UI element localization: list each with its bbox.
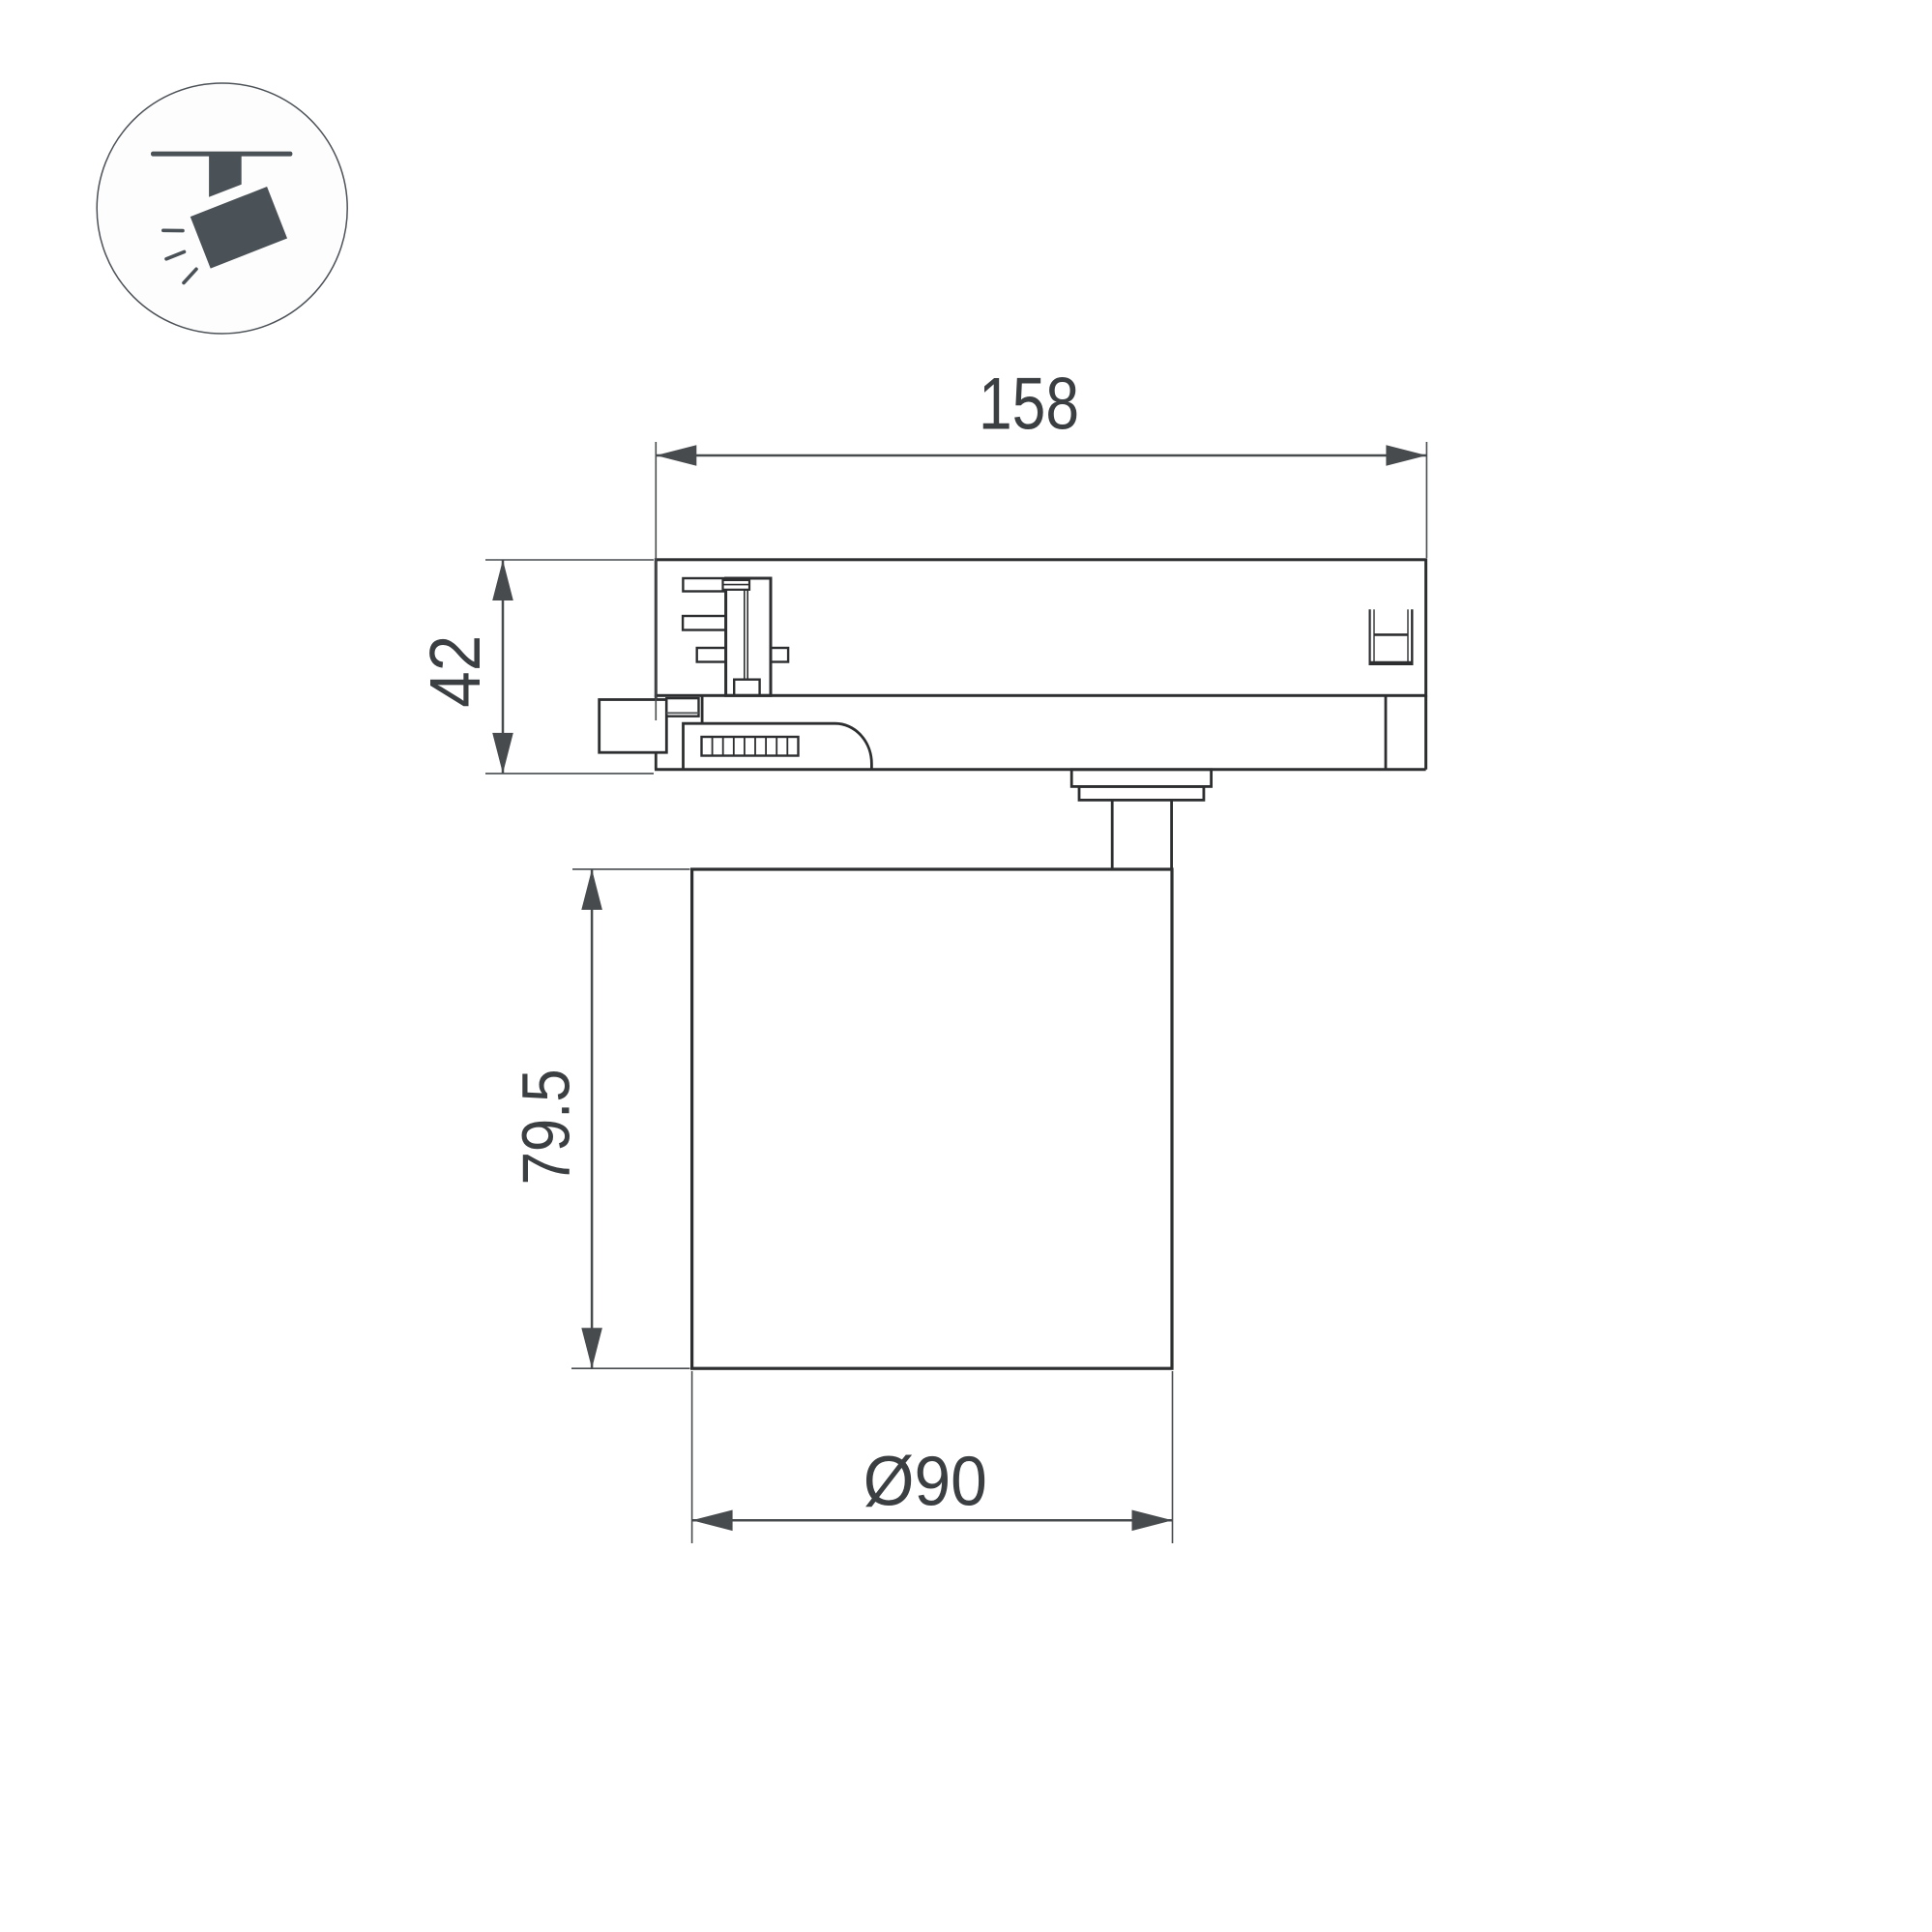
svg-text:Ø90: Ø90: [864, 1444, 987, 1521]
svg-text:42: 42: [415, 635, 495, 708]
svg-text:79.5: 79.5: [509, 1068, 584, 1185]
svg-text:158: 158: [979, 364, 1079, 446]
